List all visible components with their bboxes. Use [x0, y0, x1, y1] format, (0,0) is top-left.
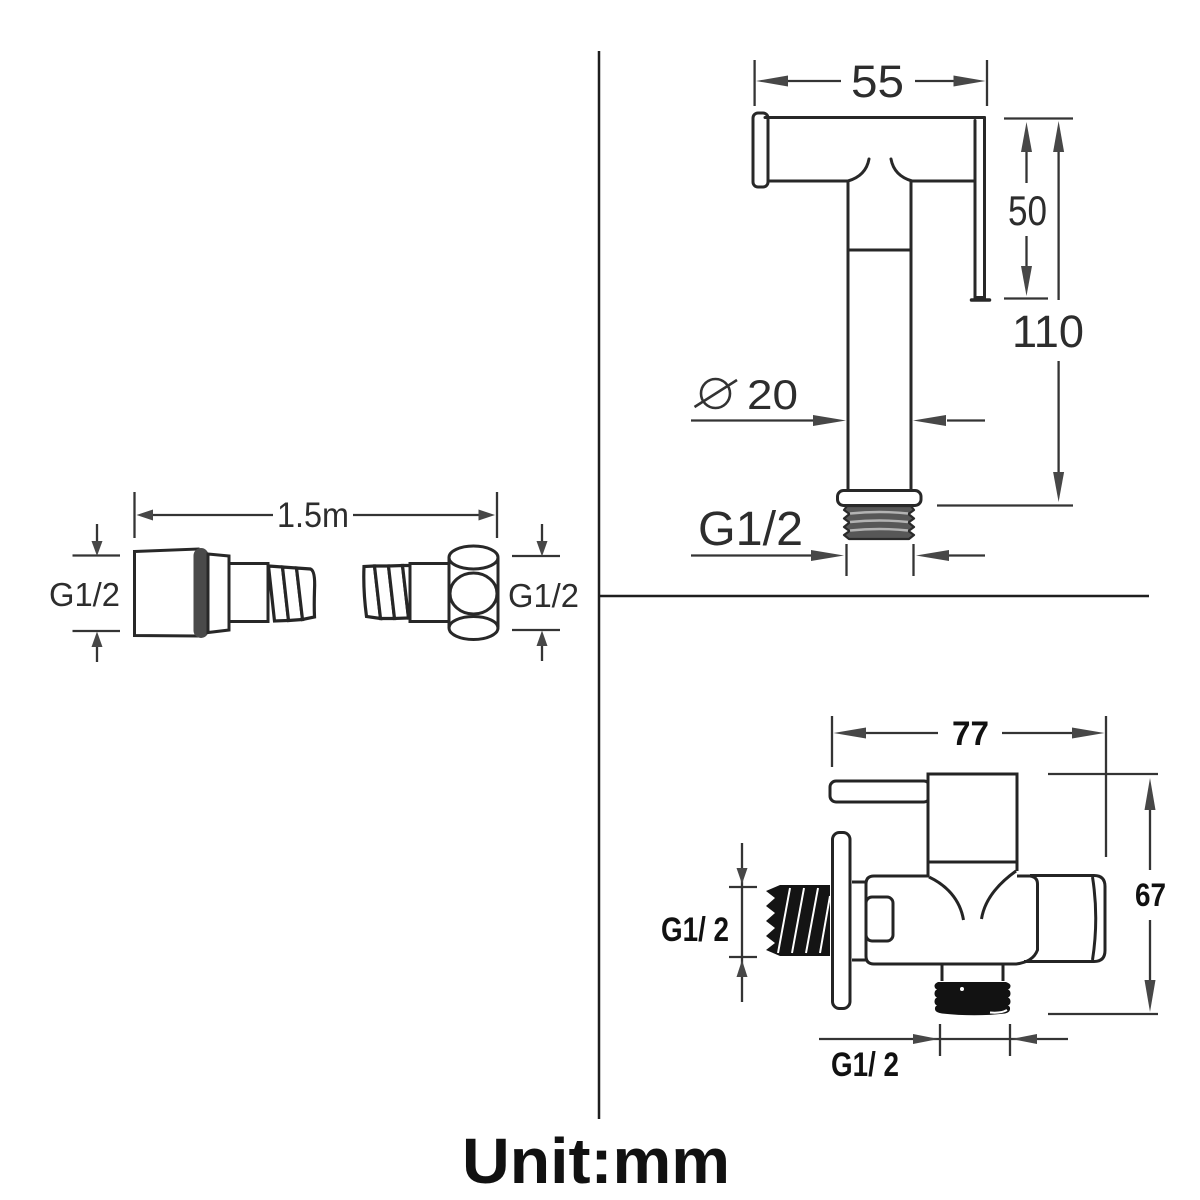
svg-text:G1/2: G1/2: [698, 503, 803, 556]
svg-text:77: 77: [952, 715, 989, 753]
svg-text:G1/ 2: G1/ 2: [831, 1046, 899, 1084]
svg-text:67: 67: [1135, 877, 1166, 913]
svg-text:Unit:mm: Unit:mm: [462, 1125, 730, 1197]
svg-text:G1/ 2: G1/ 2: [661, 911, 729, 949]
svg-text:20: 20: [747, 371, 798, 418]
svg-text:50: 50: [1008, 187, 1047, 234]
svg-text:G1/2: G1/2: [508, 577, 579, 614]
svg-text:1.5m: 1.5m: [277, 496, 349, 535]
svg-text:55: 55: [851, 56, 904, 107]
svg-text:110: 110: [1012, 306, 1084, 357]
svg-text:G1/2: G1/2: [49, 576, 120, 613]
